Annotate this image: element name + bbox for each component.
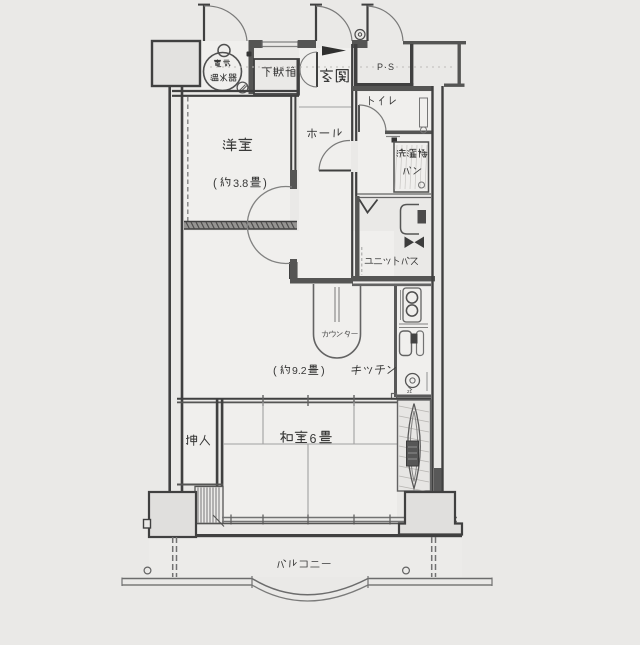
svg-text:21: 21 [407, 389, 413, 394]
svg-text:(: ( [213, 178, 217, 190]
svg-text:): ) [263, 178, 267, 190]
svg-text:P·S: P·S [377, 62, 395, 72]
svg-text:3.8: 3.8 [233, 178, 248, 190]
svg-text:): ) [321, 365, 325, 377]
svg-text:9.2: 9.2 [292, 365, 307, 377]
svg-text:(: ( [273, 365, 277, 377]
